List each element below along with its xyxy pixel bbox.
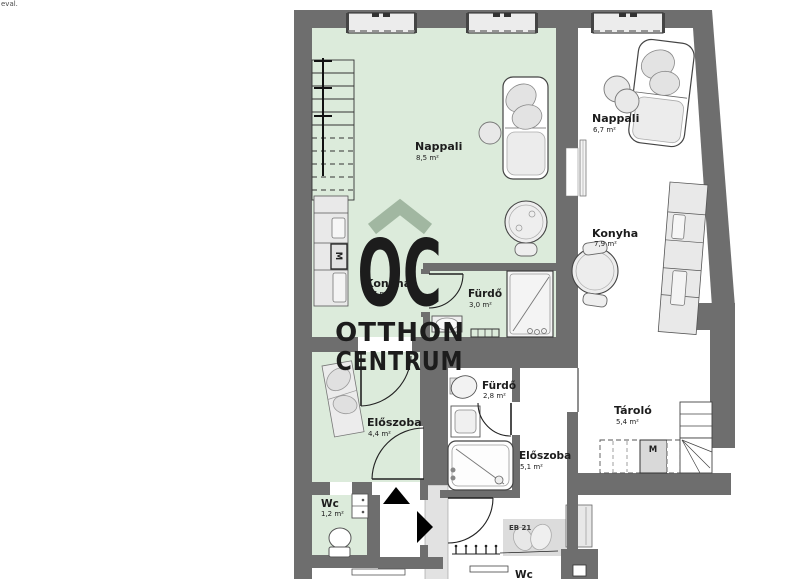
plant-left [479,122,501,144]
kitchen-sink-left [332,218,345,238]
cooktop-left [333,273,346,302]
area-furdo-1: 3,0 m² [469,301,492,309]
label-wc-2: Wc [515,569,533,579]
wall-storage-bottom [578,473,731,495]
corner-note-text: eval. [1,0,18,8]
window-2 [466,13,538,33]
label-wc-1: Wc [321,498,339,510]
logo-otthon: OTTHON [335,318,465,348]
label-nappali-2: Nappali [592,112,639,125]
sofa-left [500,77,548,179]
kitchen-sink-right [672,214,686,239]
label-eloszoba-1: Előszoba [367,416,422,429]
chair-left [515,243,537,256]
bath2-sink [448,372,480,402]
area-nappali-2: 6,7 m² [593,126,616,134]
label-konyha-2: Konyha [592,227,638,240]
corner-stair-shelves [680,402,712,438]
label-furdo-1: Fürdő [468,288,502,300]
wall-wc1-top-a [312,482,330,495]
area-wc-1: 1,2 m² [321,510,344,518]
storage-m-label: M [649,445,657,455]
window-3 [591,13,665,33]
wall-wc1-top-b [352,482,372,495]
entrance-arrow-up-icon [383,487,410,504]
floorplan-page: { "page": { "corner_text": "eval.", "bac… [0,0,800,579]
cooktop-right [670,271,687,306]
sofa-left-seat [507,132,545,175]
label-furdo-2: Fürdő [482,380,516,392]
logo-centrum: CENTRUM [336,346,464,376]
wall-left [294,10,312,579]
floor-plan-container: M [0,0,800,579]
label-eb21: EB 21 [509,524,531,532]
wall-bath1-top [423,263,556,271]
area-konyha-1: 6,7 m² [366,290,389,298]
label-tarolo: Tároló [614,404,652,417]
area-tarolo: 5,4 m² [616,418,639,426]
label-konyha-1: Konyha [365,277,411,290]
door-bath2 [478,403,511,436]
side-table-2 [615,89,639,113]
bottom-right-box [573,565,586,576]
floor-plan-svg: M [0,0,800,579]
area-furdo-2: 2,8 m² [483,392,506,400]
label-nappali-1: Nappali [415,140,462,153]
logo-initials: OC [357,219,442,327]
area-eloszoba-1: 4,4 m² [368,430,391,438]
toilet-bowl [329,528,351,548]
label-eloszoba-2: Előszoba [519,450,571,462]
bathtub [448,441,513,490]
wall-bottom-center [378,557,443,569]
kitchen-counter-left: M [314,196,348,306]
wall-right-lower [710,307,735,448]
toilet-tank [329,547,350,557]
windows [346,13,665,33]
sofa-right-seat [632,96,685,144]
wall-hall2-right [567,412,578,555]
window-1 [346,13,417,33]
door-entry-right [448,498,493,543]
bottom-door-leaf [470,566,508,572]
bottom-left-fixture [352,569,405,575]
area-nappali-1: 8,5 m² [416,154,439,162]
kitchen-table-right [572,240,618,307]
area-konyha-2: 7,9 m² [594,240,617,248]
wall-wc1-right [367,495,380,556]
area-eloszoba-2: 5,1 m² [520,463,543,471]
dishwasher-m-label: M [333,252,343,260]
wall-hall1-right-b [420,479,428,500]
sofa-right [627,38,696,148]
chair-right-bottom [582,292,607,307]
wall-niche [566,148,578,196]
wall-bath2-bottom [440,490,520,498]
storage-shelf-1 [600,440,640,473]
